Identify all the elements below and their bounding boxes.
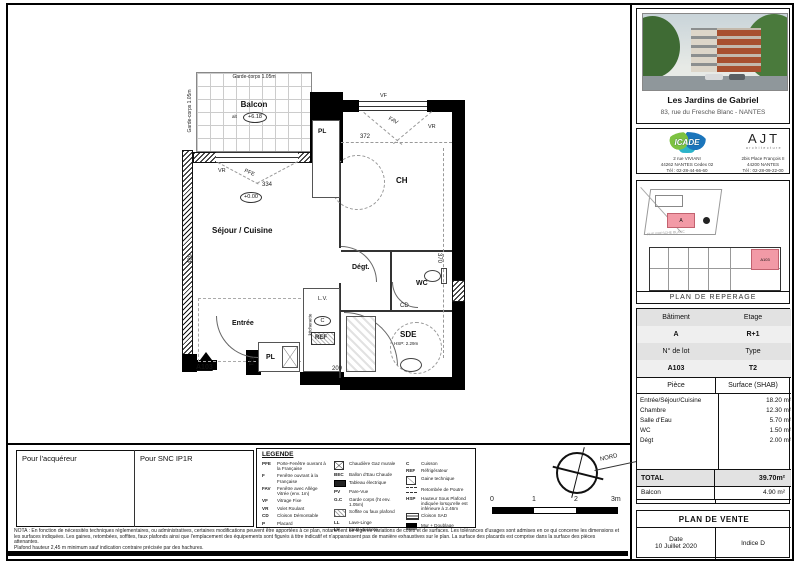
piece-name: WC — [640, 426, 718, 436]
balcony-level: +6.18 — [243, 112, 267, 123]
sejour-label: Séjour / Cuisine — [212, 226, 272, 235]
degagement-label: Dégt. — [352, 264, 370, 271]
partition — [341, 310, 452, 312]
reperage-box: A RUE FRESCHE BLANC A103 PLAN DE REPERAG… — [636, 180, 790, 304]
floor-plan-mini: A103 — [649, 247, 781, 291]
legend-item: PFEPorte-Fenêtre ouvrant à la Française — [262, 461, 328, 471]
vr-label: VR — [218, 168, 226, 174]
signature-divider — [134, 450, 135, 527]
mini-unit-line — [730, 248, 731, 290]
building-photo — [642, 13, 788, 91]
legend-item: BECBallon d'Eau Chaude — [334, 472, 400, 477]
scale-segment — [493, 508, 534, 513]
sidebar-divider — [630, 3, 632, 561]
ajt-logo-sub: architecture — [741, 146, 787, 150]
cloison-sad-icon — [406, 513, 419, 520]
shower — [346, 316, 376, 372]
indice-value: Indice D — [741, 540, 765, 547]
wc-bowl — [424, 270, 441, 282]
legend-item: Cloison SAD — [406, 513, 470, 520]
mini-unit-line — [668, 248, 669, 290]
level-zero: +0.00 — [240, 192, 262, 203]
vente-date-cell: Date 10 Juillet 2020 — [637, 527, 716, 559]
type-header: Type — [715, 343, 791, 361]
ref-label: REF — [315, 335, 327, 341]
nota-text-2: Plafond hauteur 2,45 m minimum sauf indi… — [14, 545, 620, 551]
piece-name: Dégt — [640, 436, 718, 446]
etage-header: Etage — [715, 309, 791, 327]
legend-item: LLLave-Linge — [334, 520, 400, 525]
legend-item: Retombée de Poutre — [406, 487, 470, 493]
building-face-light — [691, 28, 717, 72]
legend-item: CCuisson — [406, 461, 470, 466]
kitchenette-label: kitchenette — [308, 295, 313, 355]
tableau-electrique-icon — [334, 480, 346, 487]
plan-de-vente-sheet: Garde-corps 1.05m Garde-corps 1.05m Balc… — [0, 0, 800, 566]
cuisson-oval: C — [314, 316, 331, 326]
surface-list: 18.20 m² 12.30 m² 5.70 m² 1.50 m² 2.00 m… — [715, 393, 797, 472]
basin — [400, 358, 422, 372]
chambre-label: CH — [396, 176, 408, 185]
wall-segment — [340, 377, 465, 390]
legend-item: CDCloison Démontable — [262, 513, 328, 518]
legend-item: REFRéfrigérateur — [406, 468, 470, 473]
sde-label: SDE — [400, 330, 416, 339]
empty-row-divider — [715, 499, 716, 504]
roundabout-icon — [703, 217, 710, 224]
lot-label: A103 — [196, 364, 213, 371]
legend-item: G.CGarde corps (ht env. 1.05m) — [334, 497, 400, 507]
project-title: Les Jardins de Gabriel — [637, 95, 789, 105]
site-building-a: A — [667, 213, 695, 228]
vf-window — [359, 101, 427, 111]
mini-unit-line — [708, 248, 709, 290]
batiment-value: A — [637, 326, 716, 344]
total-label: TOTAL — [637, 470, 715, 486]
piece-surface: 5.70 m² — [715, 416, 791, 426]
mini-unit-highlight: A103 — [751, 249, 779, 270]
site-building-a-label: A — [679, 218, 682, 224]
logos-box: ICADE 2 rue VIVIANI 44262 NANTES Cedex 0… — [636, 128, 790, 174]
icade-logo: ICADE — [665, 132, 709, 154]
scale-bar — [492, 507, 618, 514]
legend-item: Tableau électrique — [334, 480, 400, 487]
cd-label: CD — [400, 303, 409, 309]
piece-surface: 18.20 m² — [715, 396, 791, 406]
legend-item: FAVFenêtre avec Allège Vitrée (env. 1m) — [262, 486, 328, 496]
placard-top-label: PL — [318, 128, 326, 135]
wc-label: WC — [416, 280, 428, 287]
dim-209: 209 — [332, 366, 342, 372]
entree-label: Entrée — [232, 320, 254, 327]
balcon-value: 4.90 m² — [715, 489, 791, 496]
vente-box: PLAN DE VENTE Date 10 Juillet 2020 Indic… — [636, 510, 790, 558]
batiment-header: Bâtiment — [637, 309, 716, 327]
dim-334: 334 — [262, 182, 272, 188]
chaudiere-icon — [334, 461, 344, 470]
vr-ch-label: VR — [428, 124, 436, 130]
lv-label: L.V. — [318, 296, 327, 302]
reperage-caption: PLAN DE REPERAGE — [637, 291, 789, 301]
scale-segment — [534, 508, 575, 513]
piece-surface: 2.00 m² — [715, 436, 791, 446]
dim-372: 372 — [360, 134, 370, 140]
total-value: 39.70m² — [715, 475, 791, 482]
nota-text: NOTA : En fonction de nécessités techniq… — [14, 529, 620, 546]
hsp-label: HSP: 2.29m — [394, 341, 418, 346]
legend-item: PVPare-Vue — [334, 489, 400, 494]
surface-table: Bâtiment Etage A R+1 N° de lot Type A103… — [636, 308, 790, 504]
car — [729, 74, 745, 80]
dim-370: 370 — [436, 253, 442, 263]
scale-tick-0: 0 — [490, 496, 494, 503]
piece-name: Salle d'Eau — [640, 416, 718, 426]
dim-line-370 — [443, 148, 444, 358]
site-plan-mini: A RUE FRESCHE BLANC — [641, 185, 781, 243]
date-value: 10 Juillet 2020 — [655, 543, 697, 550]
footer-divider — [8, 443, 630, 445]
bottom-rule — [8, 551, 628, 556]
legend-item: PPlacard — [262, 521, 328, 526]
garde-corps-top-label: Garde-corps 1.05m — [196, 74, 312, 80]
balcony-label: Balcon — [196, 100, 312, 109]
lot-value: A103 — [637, 360, 716, 378]
car — [705, 74, 723, 80]
icade-address-3: Tél : 02-28-44-66-60 — [641, 168, 733, 173]
balcon-row: Balcon 4.90 m² — [637, 485, 791, 500]
ajt-logo: AJT — [741, 131, 787, 146]
scale-tick-3: 3m — [611, 496, 621, 503]
legend-item: VRVolet Roulant — [262, 506, 328, 511]
gaine-technique — [452, 280, 465, 302]
legend-item: HSPHauteur Sous Plafond indiquée lorsqu'… — [406, 496, 470, 511]
signature-acquereur-label: Pour l'acquéreur — [22, 454, 77, 463]
balcon-label: Balcon — [637, 485, 715, 499]
legend-col1: PFEPorte-Fenêtre ouvrant à la Française … — [262, 461, 328, 528]
tel-label: TEL — [250, 356, 256, 365]
lot-header: N° de lot — [637, 343, 716, 361]
mini-unit-label: A103 — [760, 257, 769, 262]
wall-segment — [452, 104, 465, 390]
scale-tick-1: 1 — [532, 496, 536, 503]
legend-title: LEGENDE — [262, 451, 293, 458]
legend-item: Chaudière Gaz murale — [334, 461, 400, 470]
piece-header: Pièce — [637, 377, 716, 394]
piece-surface: 12.30 m² — [715, 406, 791, 416]
legend-item: FFenêtre ouvrant à la Française — [262, 473, 328, 483]
legend-item: VFVitrage Fixe — [262, 498, 328, 503]
indice-cell: Indice D — [715, 527, 791, 559]
project-address: 83, rue du Fresche Blanc - NANTES — [637, 109, 789, 116]
entry-marker-icon — [200, 352, 212, 360]
ajt-address-3: Tél : 02-28-09-22-00 — [737, 168, 789, 173]
icade-address-2: 44262 NANTES Cedex 02 — [641, 162, 733, 167]
legend-col3: CCuisson REFRéfrigérateur Gaine techniqu… — [406, 461, 470, 532]
balcony-level-prefix: alt — [232, 114, 237, 119]
mini-unit-line — [688, 248, 689, 290]
garde-corps-left-label: Garde-corps 1.05m — [187, 81, 193, 141]
retombee-icon — [406, 487, 417, 493]
vente-title: PLAN DE VENTE — [637, 511, 791, 528]
etage-value: R+1 — [715, 326, 791, 344]
placard-bottom-label: PL — [266, 354, 275, 361]
surface-header: Surface (SHAB) — [715, 377, 791, 394]
shower-cross-box — [282, 346, 298, 368]
dim-line-372 — [341, 142, 452, 143]
wall-segment — [300, 372, 344, 385]
ajt-address-2: 44200 NANTES — [737, 162, 789, 167]
date-label: Date — [669, 536, 683, 543]
dim-489: 489 — [188, 254, 194, 264]
project-box: Les Jardins de Gabriel 83, rue du Fresch… — [636, 8, 790, 124]
vf-label: VF — [380, 93, 387, 99]
icade-address-1: 2 rue VIVIANI — [641, 156, 733, 161]
wall-segment — [343, 100, 359, 112]
piece-name: Chambre — [640, 406, 718, 416]
piece-list: Entrée/Séjour/Cuisine Chambre Salle d'Ea… — [637, 393, 719, 472]
piece-surface: 1.50 m² — [715, 426, 791, 436]
partition — [390, 252, 392, 310]
signature-snc-label: Pour SNC IP1R — [140, 454, 193, 463]
wc-tank — [441, 268, 447, 284]
balcony-door-window — [216, 152, 298, 163]
scale-tick-2: 2 — [574, 496, 578, 503]
scale-segment — [576, 508, 617, 513]
type-value: T2 — [715, 360, 791, 378]
piece-name: Entrée/Séjour/Cuisine — [640, 396, 718, 406]
tree-left — [642, 16, 680, 78]
soffite-icon — [334, 509, 346, 517]
site-building-b — [655, 195, 683, 207]
gaine-icon — [406, 476, 416, 485]
ajt-address-1: 2bis Place François II — [737, 156, 789, 161]
icade-logo-text: ICADE — [665, 138, 709, 147]
legend-item: Gaine technique — [406, 476, 470, 485]
legend-col2: Chaudière Gaz murale BECBallon d'Eau Cha… — [334, 461, 400, 534]
legend-item: Soffite ou faux plafond — [334, 509, 400, 517]
